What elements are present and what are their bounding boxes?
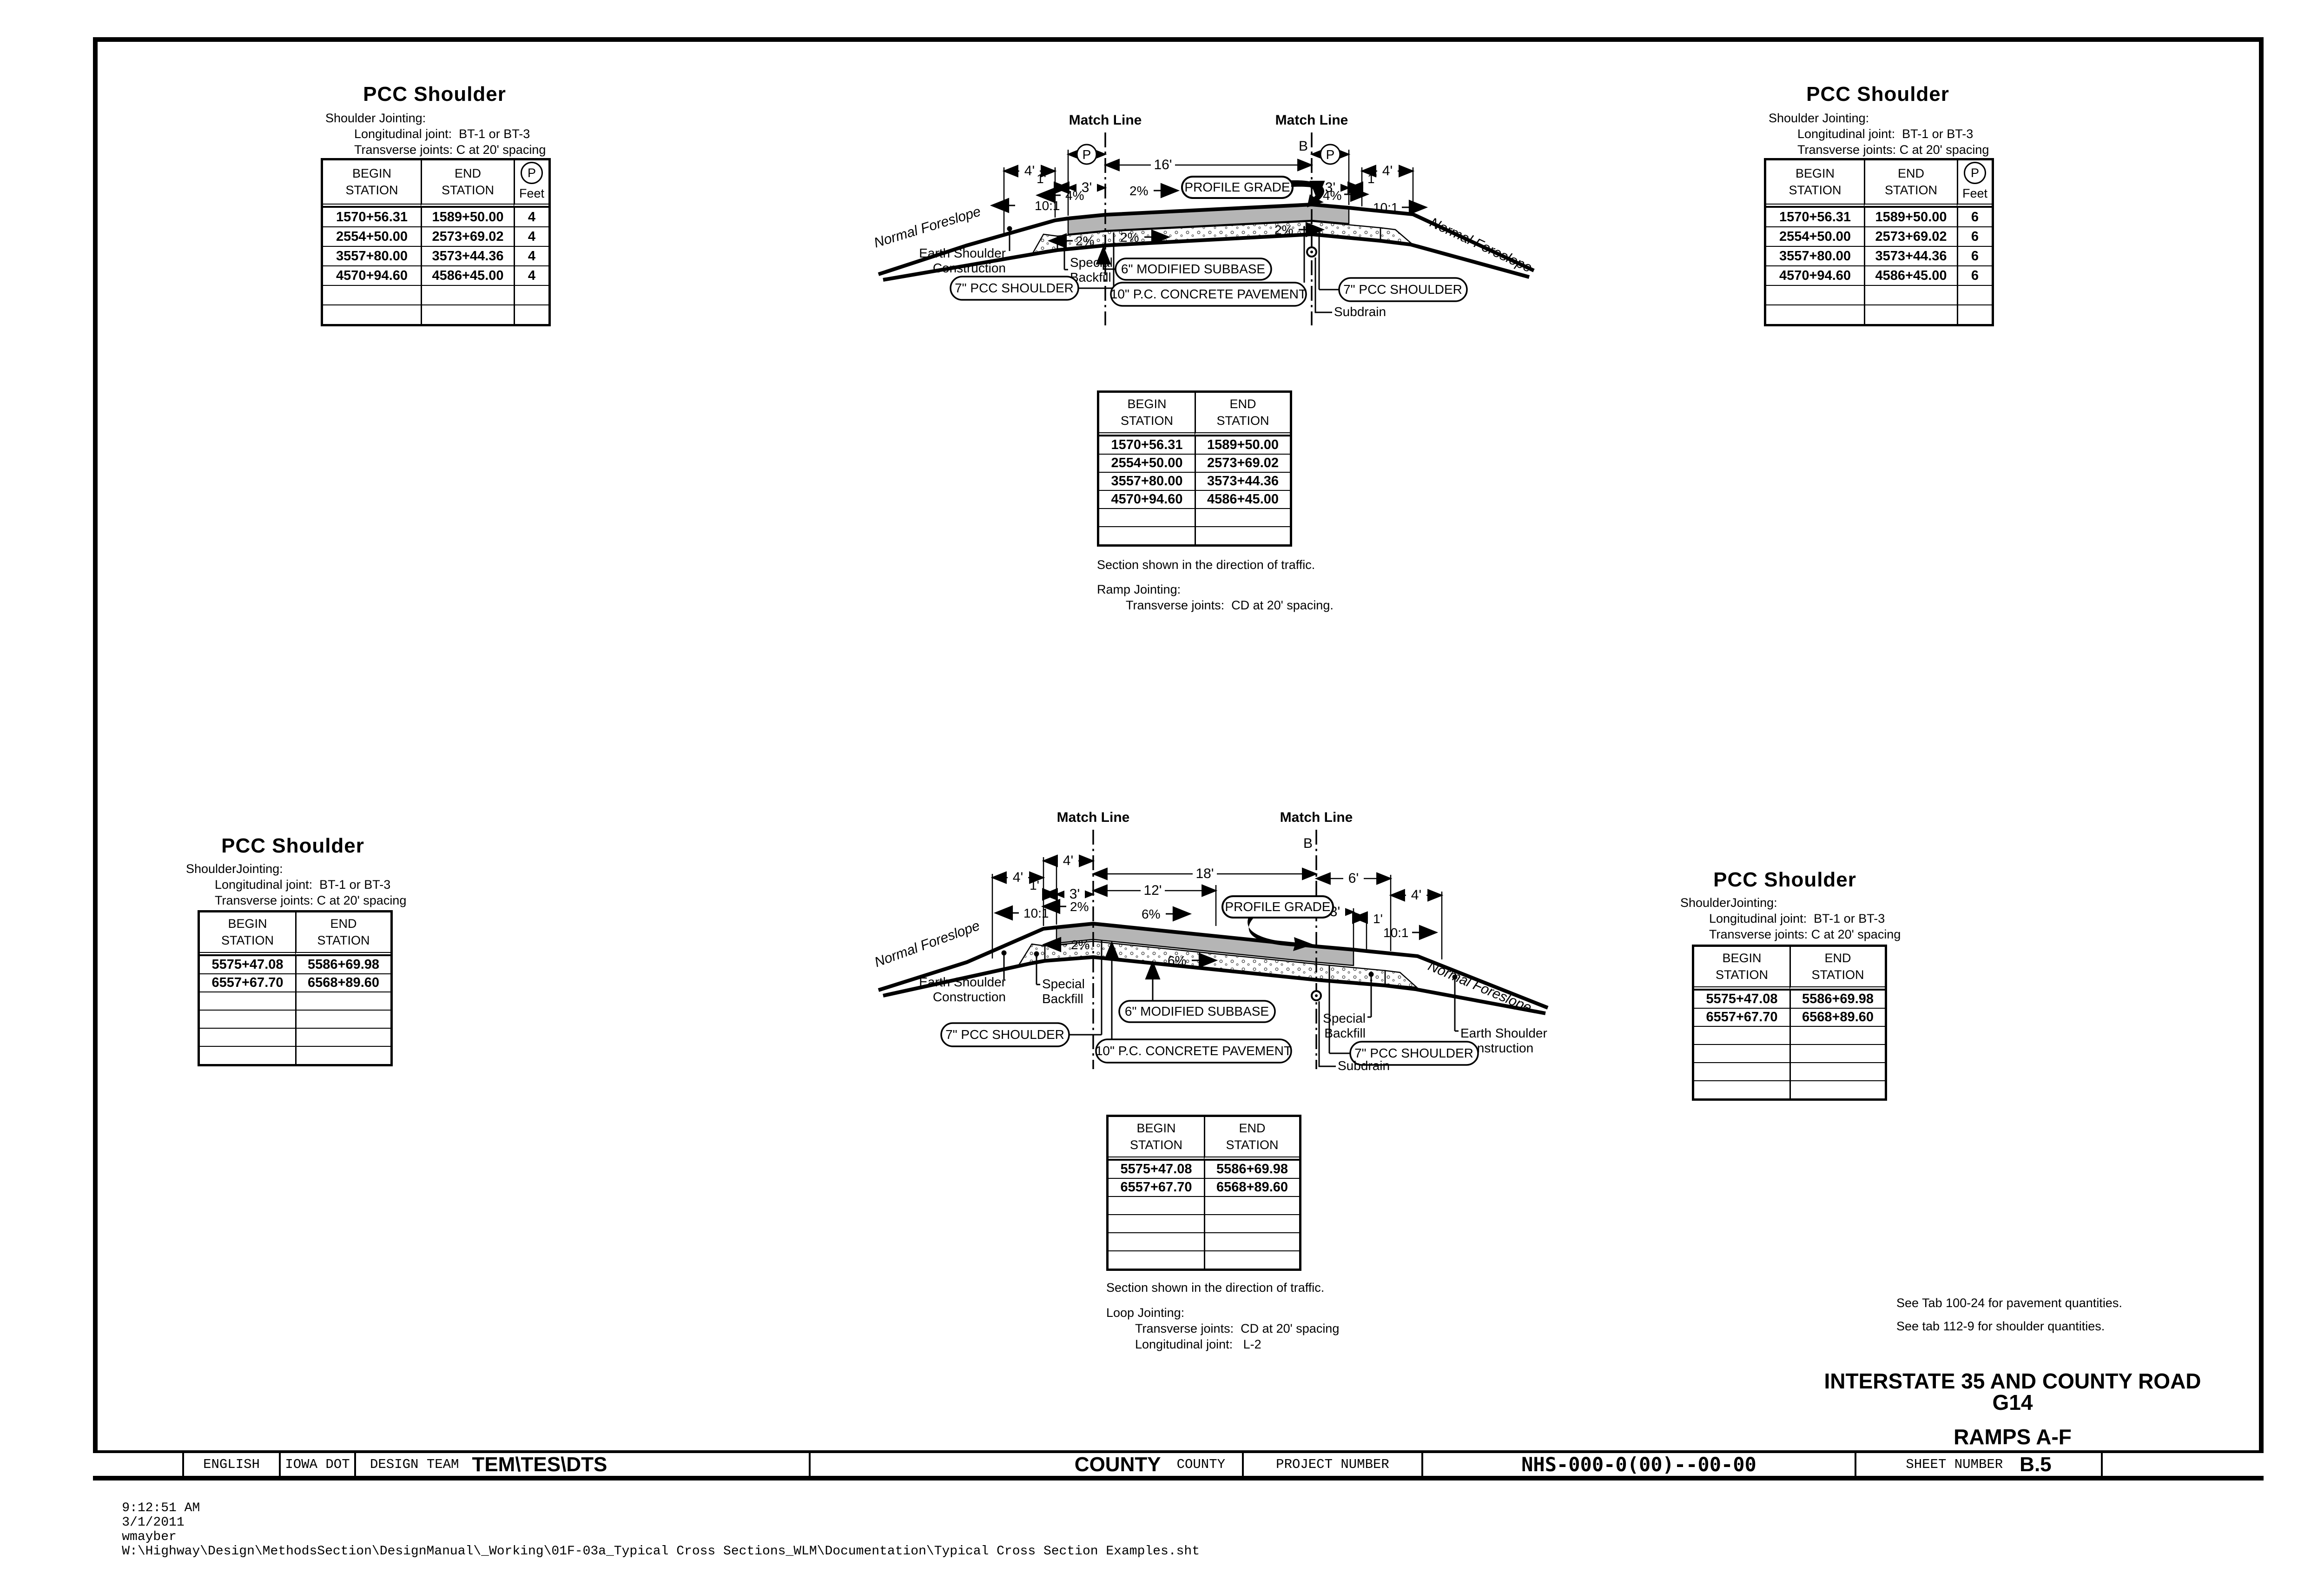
design-team-value: TEM\TES\DTS bbox=[472, 1453, 607, 1476]
sheet-number-label: SHEET NUMBER bbox=[1906, 1457, 2003, 1472]
dim-left-4a: 4' bbox=[1063, 853, 1073, 868]
table-cell: 6568+89.60 bbox=[295, 973, 390, 991]
table-cell-empty bbox=[1204, 1232, 1299, 1250]
jointing-line: Longitudinal joint: BT-1 or BT-3 bbox=[1769, 126, 1989, 142]
col-header-end: ENDSTATION bbox=[1204, 1117, 1299, 1160]
table-cell-empty bbox=[1195, 526, 1290, 544]
slope-2pct-sub-center: 2% bbox=[1120, 230, 1139, 245]
title-block-bar: ENGLISH IOWA DOT DESIGN TEAM TEM\TES\DTS… bbox=[93, 1450, 2264, 1480]
design-team-label: DESIGN TEAM bbox=[370, 1457, 459, 1472]
table-cell-empty bbox=[1204, 1214, 1299, 1232]
table-cell-empty bbox=[1694, 1062, 1789, 1080]
table-cell: 6 bbox=[1957, 246, 1992, 265]
col-header-p-feet: PFeet bbox=[514, 160, 548, 207]
dim-center-18: 18' bbox=[1195, 866, 1214, 881]
plot-status-line: 9:12:51 AM 3/1/2011 wmayber W:\Highway\D… bbox=[91, 1487, 1200, 1573]
dim-left-1: 1' bbox=[1037, 172, 1046, 186]
table-cell-empty bbox=[1099, 508, 1195, 526]
col-header-begin: BEGINSTATION bbox=[200, 912, 295, 955]
table-cell-empty bbox=[1694, 1044, 1789, 1062]
table-cell: 1570+56.31 bbox=[1099, 436, 1195, 454]
table-cell-empty bbox=[323, 285, 421, 304]
col-header-end: ENDSTATION bbox=[421, 160, 514, 207]
jointing-line: Longitudinal joint: BT-1 or BT-3 bbox=[1680, 911, 1901, 927]
table-cell: 2573+69.02 bbox=[421, 226, 514, 246]
jointing-notes-bottom-right: ShoulderJointing: Longitudinal joint: BT… bbox=[1680, 895, 1901, 942]
table-cell: 2554+50.00 bbox=[1099, 454, 1195, 472]
leader-dot bbox=[1002, 951, 1007, 956]
table-cell-empty bbox=[421, 285, 514, 304]
block-title-top-left: PCC Shoulder bbox=[321, 83, 548, 106]
table-cell-empty bbox=[295, 991, 390, 1010]
pcc-shoulder-label-left: 7" PCC SHOULDER bbox=[945, 1027, 1064, 1042]
subdrain-label: Subdrain bbox=[1338, 1058, 1390, 1073]
plot-date: 3/1/2011 bbox=[122, 1515, 184, 1530]
table-cell-empty bbox=[1694, 1026, 1789, 1044]
table-cell: 2554+50.00 bbox=[1766, 226, 1864, 246]
table-cell: 2554+50.00 bbox=[323, 226, 421, 246]
dimension-labels: 4' 4' 1' 3' 18' 12' 6' 4' 3' 1' bbox=[1008, 853, 1426, 926]
ramp-caption: Section shown in the direction of traffi… bbox=[1097, 558, 1315, 572]
dim-right-1: 1' bbox=[1373, 912, 1383, 926]
jointing-notes-top-right: Shoulder Jointing: Longitudinal joint: B… bbox=[1769, 111, 1989, 158]
table-cell: 2573+69.02 bbox=[1195, 454, 1290, 472]
earth-shoulder-label2: Construction bbox=[933, 261, 1006, 275]
special-backfill-label-right2: Backfill bbox=[1324, 1026, 1366, 1040]
table-cell: 2573+69.02 bbox=[1864, 226, 1957, 246]
table-cell: 5575+47.08 bbox=[1694, 990, 1789, 1008]
special-backfill-label-right: Special bbox=[1323, 1011, 1366, 1025]
special-backfill-label: Special bbox=[1042, 977, 1085, 991]
table-cell: 4586+45.00 bbox=[1195, 490, 1290, 508]
jointing-line: Transverse joints: C at 20' spacing bbox=[1769, 142, 1989, 158]
leader-dot bbox=[1452, 975, 1458, 980]
p-symbol: P bbox=[1083, 147, 1091, 162]
dim-right-4: 4' bbox=[1382, 163, 1393, 178]
table-cell: 3557+80.00 bbox=[1099, 472, 1195, 490]
dim-center-12: 12' bbox=[1143, 883, 1162, 898]
dim-right-4: 4' bbox=[1411, 887, 1421, 903]
jointing-heading: Loop Jointing: bbox=[1106, 1305, 1339, 1321]
table-cell: 4 bbox=[514, 226, 548, 246]
title-block-empty-cell bbox=[93, 1453, 182, 1476]
sheet-number-cell: SHEET NUMBER B.5 bbox=[1855, 1453, 2101, 1476]
table-cell-empty bbox=[295, 1028, 390, 1046]
profile-grade-label: PROFILE GRADE bbox=[1184, 180, 1290, 194]
slope-10-1-left: 10:1 bbox=[1023, 906, 1049, 920]
dim-center-16: 16' bbox=[1154, 157, 1172, 172]
design-team-cell: DESIGN TEAM TEM\TES\DTS bbox=[354, 1453, 809, 1476]
earth-shoulder-label: Earth Shoulder bbox=[919, 975, 1006, 989]
table-cell-empty bbox=[295, 1046, 390, 1064]
sheet-title-line1: INTERSTATE 35 AND COUNTY ROAD G14 bbox=[1803, 1370, 2222, 1413]
table-cell-empty bbox=[1864, 304, 1957, 324]
pavement-label: 10" P.C. CONCRETE PAVEMENT bbox=[1096, 1044, 1292, 1058]
table-cell-empty bbox=[1109, 1232, 1204, 1250]
table-cell: 3573+44.36 bbox=[1195, 472, 1290, 490]
table-cell-empty bbox=[514, 304, 548, 324]
col-header-begin: BEGINSTATION bbox=[1099, 393, 1195, 436]
plot-time: 9:12:51 AM bbox=[122, 1501, 200, 1515]
leader-dot bbox=[1007, 226, 1012, 231]
table-cell: 6557+67.70 bbox=[1109, 1178, 1204, 1196]
col-header-begin: BEGINSTATION bbox=[323, 160, 421, 207]
col-header-end: ENDSTATION bbox=[295, 912, 390, 955]
normal-foreslope-label-right: Normal Foreslope bbox=[1426, 958, 1534, 1016]
jointing-line: Transverse joints: C at 20' spacing bbox=[186, 893, 406, 909]
col-header-end: ENDSTATION bbox=[1195, 393, 1290, 436]
table-cell: 5586+69.98 bbox=[295, 955, 390, 973]
county-cell: COUNTY COUNTY bbox=[809, 1453, 1242, 1476]
special-backfill-label2: Backfill bbox=[1042, 991, 1083, 1006]
jointing-line: Transverse joints: CD at 20' spacing. bbox=[1097, 598, 1334, 614]
table-cell-empty bbox=[1109, 1250, 1204, 1269]
earth-shoulder-label: Earth Shoulder bbox=[919, 246, 1006, 260]
county-value: COUNTY bbox=[1075, 1453, 1161, 1476]
table-cell: 5575+47.08 bbox=[1109, 1160, 1204, 1178]
b-point-label: B bbox=[1299, 139, 1308, 154]
dimension-lines bbox=[992, 861, 1442, 918]
ramp-jointing-notes: Ramp Jointing: Transverse joints: CD at … bbox=[1097, 582, 1334, 614]
station-table-top-left: BEGINSTATION ENDSTATION PFeet 1570+56.31… bbox=[321, 158, 551, 326]
slope-10-1-right: 10:1 bbox=[1383, 925, 1409, 940]
station-table-top-right: BEGINSTATION ENDSTATION PFeet 1570+56.31… bbox=[1764, 158, 1994, 326]
col-header-begin: BEGINSTATION bbox=[1766, 160, 1864, 207]
block-title-bottom-right: PCC Shoulder bbox=[1687, 868, 1882, 892]
sheet-number-value: B.5 bbox=[2020, 1453, 2051, 1476]
table-cell-empty bbox=[1204, 1250, 1299, 1269]
slope-4pct-left: 4% bbox=[1065, 188, 1084, 203]
slope-2pct-sub-left: 2% bbox=[1076, 234, 1094, 248]
table-cell-empty bbox=[1109, 1214, 1204, 1232]
table-cell-empty bbox=[1789, 1026, 1885, 1044]
subdrain-label: Subdrain bbox=[1334, 304, 1386, 319]
dim-right-6: 6' bbox=[1348, 871, 1359, 886]
col-header-begin: BEGINSTATION bbox=[1694, 947, 1789, 990]
jointing-heading: Ramp Jointing: bbox=[1097, 582, 1334, 598]
slope-2pct-sub-left: 2% bbox=[1071, 938, 1089, 952]
table-cell-empty bbox=[1766, 285, 1864, 304]
p-circle-icon: P bbox=[521, 162, 543, 184]
match-line-label-right: Match Line bbox=[1275, 112, 1348, 128]
plot-file-path: W:\Highway\Design\MethodsSection\DesignM… bbox=[122, 1544, 1200, 1559]
table-cell: 4 bbox=[514, 265, 548, 285]
leader-dot bbox=[1034, 952, 1039, 957]
subdrain-symbol-dot bbox=[1315, 994, 1318, 997]
subbase-label: 6" MODIFIED SUBBASE bbox=[1121, 262, 1265, 276]
table-cell: 6 bbox=[1957, 207, 1992, 226]
table-cell-empty bbox=[1766, 304, 1864, 324]
block-title-top-right: PCC Shoulder bbox=[1764, 83, 1992, 106]
special-backfill-label: Special bbox=[1070, 255, 1113, 270]
table-cell-empty bbox=[1864, 285, 1957, 304]
jointing-line: Longitudinal joint: BT-1 or BT-3 bbox=[186, 877, 406, 893]
col-header-p-feet: PFeet bbox=[1957, 160, 1992, 207]
station-table-bottom-left: BEGINSTATION ENDSTATION 5575+47.085586+6… bbox=[198, 910, 393, 1066]
slope-10-1-right: 10:1 bbox=[1373, 200, 1399, 215]
table-cell: 5575+47.08 bbox=[200, 955, 295, 973]
table-cell: 5586+69.98 bbox=[1204, 1160, 1299, 1178]
jointing-notes-top-left: Shoulder Jointing: Longitudinal joint: B… bbox=[325, 111, 546, 158]
project-number-label-cell: PROJECT NUMBER bbox=[1242, 1453, 1421, 1476]
ramp-cross-section-diagram: Match Line Match Line B P P 4' 1' bbox=[851, 112, 1576, 330]
table-cell-empty bbox=[1789, 1062, 1885, 1080]
slope-4pct-right: 4% bbox=[1323, 188, 1341, 203]
table-cell-empty bbox=[1957, 304, 1992, 324]
table-cell: 1589+50.00 bbox=[421, 207, 514, 226]
table-cell-empty bbox=[200, 1046, 295, 1064]
jointing-line: Longitudinal joint: BT-1 or BT-3 bbox=[325, 126, 546, 142]
dim-left-4b: 4' bbox=[1013, 870, 1023, 885]
jointing-heading: Shoulder Jointing: bbox=[1769, 111, 1989, 126]
dim-left-4: 4' bbox=[1024, 163, 1035, 178]
block-title-bottom-left: PCC Shoulder bbox=[195, 834, 390, 858]
slope-2pct-left: 2% bbox=[1070, 899, 1089, 914]
jointing-line: Transverse joints: C at 20' spacing bbox=[1680, 927, 1901, 943]
table-cell: 1570+56.31 bbox=[1766, 207, 1864, 226]
project-number-value-cell: NHS-000-0(00)--00-00 bbox=[1421, 1453, 1855, 1476]
table-cell: 1570+56.31 bbox=[323, 207, 421, 226]
pcc-shoulder-label-right: 7" PCC SHOULDER bbox=[1343, 282, 1462, 297]
jointing-line: Transverse joints: CD at 20' spacing bbox=[1106, 1321, 1339, 1337]
loop-caption: Section shown in the direction of traffi… bbox=[1106, 1281, 1324, 1295]
loop-jointing-notes: Loop Jointing: Transverse joints: CD at … bbox=[1106, 1305, 1339, 1352]
jointing-line: Longitudinal joint: L-2 bbox=[1106, 1337, 1339, 1353]
jointing-heading: ShoulderJointing: bbox=[186, 861, 406, 877]
table-cell-empty bbox=[295, 1010, 390, 1028]
table-cell-empty bbox=[1099, 526, 1195, 544]
loop-station-table: BEGINSTATION ENDSTATION 5575+47.085586+6… bbox=[1106, 1115, 1301, 1271]
match-line-label-right: Match Line bbox=[1280, 810, 1353, 825]
table-cell: 6557+67.70 bbox=[200, 973, 295, 991]
subbase-label: 6" MODIFIED SUBBASE bbox=[1125, 1004, 1269, 1018]
sheet-title-line2: RAMPS A-F bbox=[1803, 1426, 2222, 1447]
table-cell-empty bbox=[1204, 1196, 1299, 1214]
table-cell: 3557+80.00 bbox=[1766, 246, 1864, 265]
table-cell-empty bbox=[1789, 1080, 1885, 1098]
normal-foreslope-label-right: Normal Foreslope bbox=[1427, 215, 1534, 276]
ramp-station-table: BEGINSTATION ENDSTATION 1570+56.311589+5… bbox=[1097, 390, 1292, 547]
subdrain-symbol-dot bbox=[1310, 251, 1313, 253]
table-cell: 4586+45.00 bbox=[421, 265, 514, 285]
jointing-notes-bottom-left: ShoulderJointing: Longitudinal joint: BT… bbox=[186, 861, 406, 908]
table-cell: 3557+80.00 bbox=[323, 246, 421, 265]
table-cell-empty bbox=[200, 1010, 295, 1028]
slope-6pct-top: 6% bbox=[1142, 907, 1160, 921]
project-number-value: NHS-000-0(00)--00-00 bbox=[1521, 1453, 1756, 1476]
table-cell: 5586+69.98 bbox=[1789, 990, 1885, 1008]
station-table-bottom-right: BEGINSTATION ENDSTATION 5575+47.085586+6… bbox=[1692, 945, 1887, 1101]
col-header-end: ENDSTATION bbox=[1864, 160, 1957, 207]
col-header-begin: BEGINSTATION bbox=[1109, 1117, 1204, 1160]
table-cell: 6 bbox=[1957, 265, 1992, 285]
table-cell-empty bbox=[200, 991, 295, 1010]
table-cell-empty bbox=[1195, 508, 1290, 526]
table-cell: 4586+45.00 bbox=[1864, 265, 1957, 285]
dim-left-1: 1' bbox=[1030, 878, 1039, 892]
p-symbol: P bbox=[1326, 147, 1335, 162]
table-cell: 4 bbox=[514, 246, 548, 265]
pavement-label: 10" P.C. CONCRETE PAVEMENT bbox=[1110, 287, 1307, 301]
units-cell: ENGLISH bbox=[182, 1453, 279, 1476]
table-cell: 3573+44.36 bbox=[1864, 246, 1957, 265]
jointing-heading: ShoulderJointing: bbox=[1680, 895, 1901, 911]
note-pavement-quantities: See Tab 100-24 for pavement quantities. bbox=[1896, 1296, 2122, 1310]
leader-dot bbox=[1369, 972, 1374, 977]
b-point-label: B bbox=[1303, 836, 1313, 851]
table-cell-empty bbox=[323, 304, 421, 324]
table-cell-empty bbox=[1694, 1080, 1789, 1098]
pcc-shoulder-label-left: 7" PCC SHOULDER bbox=[955, 281, 1074, 295]
table-cell-empty bbox=[514, 285, 548, 304]
match-line-label-left: Match Line bbox=[1057, 810, 1130, 825]
table-cell: 1589+50.00 bbox=[1864, 207, 1957, 226]
table-cell: 6 bbox=[1957, 226, 1992, 246]
profile-grade-label: PROFILE GRADE bbox=[1225, 899, 1330, 914]
slope-10-1-left: 10:1 bbox=[1035, 198, 1060, 213]
table-cell: 4570+94.60 bbox=[1099, 490, 1195, 508]
match-line-label-left: Match Line bbox=[1069, 112, 1142, 128]
plot-user: wmayber bbox=[122, 1530, 177, 1544]
table-cell: 4570+94.60 bbox=[1766, 265, 1864, 285]
slope-2pct-top: 2% bbox=[1129, 184, 1148, 198]
note-shoulder-quantities: See tab 112-9 for shoulder quantities. bbox=[1896, 1319, 2105, 1334]
table-cell: 1589+50.00 bbox=[1195, 436, 1290, 454]
slope-6pct-sub: 6% bbox=[1168, 953, 1186, 968]
sheet-title: INTERSTATE 35 AND COUNTY ROAD G14 RAMPS … bbox=[1803, 1370, 2222, 1447]
table-cell-empty bbox=[1109, 1196, 1204, 1214]
dim-right-1: 1' bbox=[1367, 172, 1377, 186]
table-cell: 3573+44.36 bbox=[421, 246, 514, 265]
earth-shoulder-label2: Construction bbox=[933, 990, 1006, 1004]
table-cell: 4 bbox=[514, 207, 548, 226]
col-header-end: ENDSTATION bbox=[1789, 947, 1885, 990]
table-cell-empty bbox=[200, 1028, 295, 1046]
loop-cross-section-diagram: Match Line Match Line B 4' 4' 1' 3' 18' bbox=[851, 809, 1594, 1078]
leader-dot bbox=[1062, 239, 1067, 245]
table-cell-empty bbox=[421, 304, 514, 324]
agency-cell: IOWA DOT bbox=[279, 1453, 354, 1476]
table-cell: 6568+89.60 bbox=[1204, 1178, 1299, 1196]
slope-2pct-sub-right: 2% bbox=[1274, 223, 1293, 237]
table-cell: 4570+94.60 bbox=[323, 265, 421, 285]
table-cell-empty bbox=[1957, 285, 1992, 304]
table-cell: 6557+67.70 bbox=[1694, 1008, 1789, 1026]
title-block-empty-cell bbox=[2101, 1453, 2264, 1476]
table-cell-empty bbox=[1789, 1044, 1885, 1062]
county-label: COUNTY bbox=[1177, 1457, 1225, 1472]
table-cell: 6568+89.60 bbox=[1789, 1008, 1885, 1026]
jointing-heading: Shoulder Jointing: bbox=[325, 111, 546, 126]
earth-shoulder-label-right: Earth Shoulder bbox=[1460, 1026, 1547, 1040]
jointing-line: Transverse joints: C at 20' spacing bbox=[325, 142, 546, 158]
p-circle-icon: P bbox=[1964, 162, 1986, 184]
